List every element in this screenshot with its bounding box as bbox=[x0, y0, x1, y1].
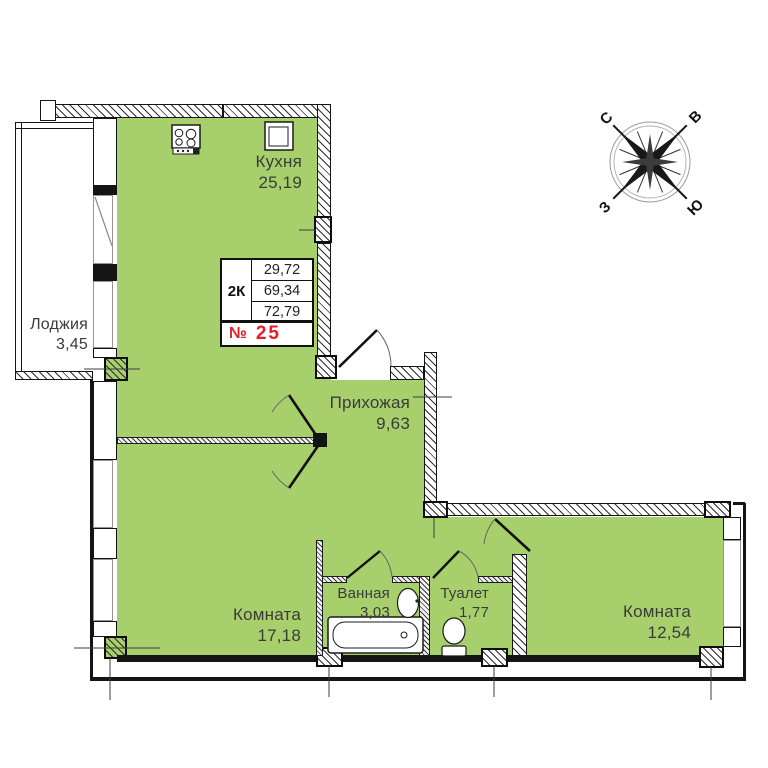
room-name: Комната bbox=[170, 604, 301, 625]
room-name: Прихожая bbox=[280, 392, 410, 413]
apartment-type: 2К bbox=[222, 260, 252, 322]
room-label-bathroom: Ванная 3,03 bbox=[300, 584, 390, 622]
room-label-kitchen: Кухня 25,19 bbox=[170, 151, 302, 193]
bathtub-icon bbox=[328, 617, 423, 653]
room2-door bbox=[484, 519, 530, 551]
room-name: Ванная bbox=[300, 584, 390, 603]
floor-plan: С В Ю З Кухня 25,19 Лоджия 3,45 Прихожая… bbox=[0, 0, 768, 768]
sink-square-icon bbox=[265, 122, 293, 150]
room-area: 9,63 bbox=[280, 413, 410, 434]
room-name: Комната bbox=[559, 601, 691, 622]
room-name: Кухня bbox=[170, 151, 302, 172]
apartment-info-box: 2К 29,72 69,34 72,79 № 25 bbox=[220, 258, 314, 347]
room-area: 17,18 bbox=[170, 625, 301, 646]
compass-rose-icon: С В Ю З bbox=[552, 63, 751, 262]
entry-door bbox=[339, 330, 391, 367]
window-casement-line bbox=[95, 197, 112, 246]
bathroom-door bbox=[347, 551, 392, 578]
toilet-door bbox=[433, 551, 478, 578]
room-label-room1: Комната 17,18 bbox=[170, 604, 301, 646]
room-area: 25,19 bbox=[170, 172, 302, 193]
compass-south-label: Ю bbox=[684, 196, 707, 219]
apartment-number: 25 bbox=[256, 323, 281, 345]
room-name: Туалет bbox=[399, 584, 489, 603]
compass-west-label: З bbox=[596, 198, 615, 217]
plan-symbols: С В Ю З bbox=[0, 0, 768, 768]
room-label-toilet: Туалет 1,77 bbox=[399, 584, 489, 622]
room-area: 1,77 bbox=[399, 603, 489, 622]
area-value: 72,79 bbox=[252, 301, 312, 322]
area-value: 69,34 bbox=[252, 280, 312, 301]
room-area: 3,03 bbox=[300, 603, 390, 622]
wc-icon bbox=[442, 618, 466, 656]
room-label-loggia: Лоджия 3,45 bbox=[5, 315, 88, 355]
room-area: 3,45 bbox=[5, 335, 88, 355]
stove-icon bbox=[172, 125, 200, 154]
room-label-room2: Комната 12,54 bbox=[559, 601, 691, 643]
number-sign: № bbox=[229, 325, 247, 343]
room1-door bbox=[272, 443, 320, 488]
area-value: 29,72 bbox=[252, 260, 312, 280]
apartment-number-box: № 25 bbox=[220, 321, 314, 347]
room-label-hallway: Прихожая 9,63 bbox=[280, 392, 410, 434]
room-name: Лоджия bbox=[5, 315, 88, 335]
apartment-areas-table: 2К 29,72 69,34 72,79 bbox=[220, 258, 314, 322]
compass-east-label: В bbox=[686, 107, 706, 127]
room-area: 12,54 bbox=[559, 622, 691, 643]
